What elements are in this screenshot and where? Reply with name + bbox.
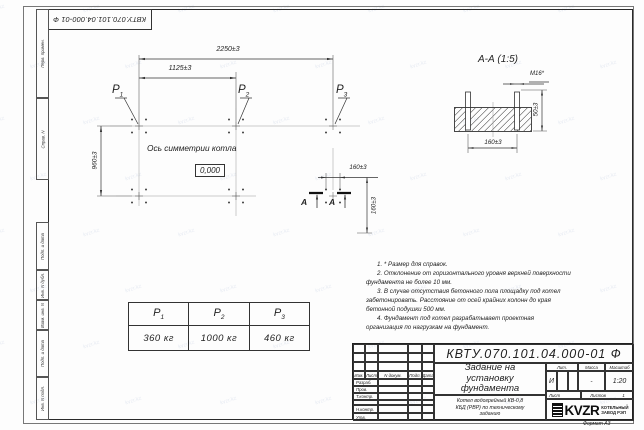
load-point-label-p1: P1	[112, 84, 123, 98]
title-block-cell-labeled: Пров.	[353, 386, 378, 393]
side-strip-label: Подп. и дата	[40, 340, 45, 367]
concrete-hatch	[455, 108, 531, 131]
title-block-cell	[408, 362, 422, 371]
title-block-cell	[422, 344, 434, 353]
loads-table-header-p3: P3	[249, 303, 309, 326]
title-block-cell-labeled: Разраб.	[353, 379, 378, 386]
sheets-value: 1	[622, 393, 624, 398]
dim-label-depth: 960±3	[92, 141, 99, 181]
format-label: Формат А3	[583, 421, 610, 427]
watermark-text: kvzr.kz	[0, 4, 5, 15]
title-block-cell	[408, 405, 422, 413]
title-block-product: Котел водогрейный КВ-0,8 КБД (РВР) по те…	[434, 395, 546, 421]
side-strip-label: Подп. и дата	[40, 233, 45, 260]
notes-block: 1. * Размер для справок. 2. Отклонение о…	[366, 261, 572, 333]
title-block-cell	[422, 386, 434, 393]
title-block-cell-labeled: Т.контр.	[353, 393, 378, 400]
title-block-cell-labeled: Подп.	[408, 371, 422, 379]
title-block-cell	[365, 344, 378, 353]
side-strip-label: Инв. N подл.	[40, 386, 45, 411]
title-block-cell-labeled: Изм.	[353, 371, 365, 379]
title-block-cell	[353, 353, 365, 362]
load-point-label-p2: P2	[238, 84, 249, 98]
bolt-size-label: М16*	[530, 71, 544, 77]
note-3: 3. В случае отсутствия бетонного пола пл…	[366, 288, 572, 315]
note-1: 1. * Размер для справок.	[366, 261, 572, 270]
document-number-stamp: КВТУ.070.101.04.000-01 Ф	[48, 9, 152, 30]
title-block-cell	[422, 379, 434, 386]
title-block-cell	[408, 344, 422, 353]
lit-cell-3	[568, 371, 578, 391]
title-block-cell	[408, 379, 422, 386]
side-strip-cell: Перв. примен.	[36, 9, 49, 98]
sheets-cell: Листов 1	[581, 391, 634, 399]
title-block-cell-labeled: Утв.	[353, 413, 378, 421]
dim-label-overall-width: 2250±3	[200, 46, 256, 53]
scale-header: Масштаб	[605, 363, 634, 371]
title-block-cell	[408, 386, 422, 393]
title-block-cell-labeled: Н.контр.	[353, 405, 378, 413]
side-strip-cell: Подп. и дата	[36, 222, 49, 270]
title-block-cell	[422, 362, 434, 371]
scale-value: 1:20	[605, 371, 634, 391]
watermark-text: kvzr.kz	[0, 228, 5, 239]
section-letter-left: А	[301, 197, 307, 207]
title-block-cell	[378, 353, 408, 362]
title-block-cell	[408, 413, 422, 421]
mass-header: Масса	[578, 363, 605, 371]
title-block-cell	[365, 362, 378, 371]
title-block-cell-labeled: Дата	[422, 371, 434, 379]
section-letter-right: А	[329, 197, 335, 207]
note-4: 4. Фундамент под котел разрабатывает про…	[366, 315, 572, 333]
dim-label-section-width: 160±3	[473, 139, 513, 146]
load-point-label-p3: P3	[336, 84, 347, 98]
dim-label-half-width: 1125±3	[152, 65, 208, 72]
title-block-cell	[378, 362, 408, 371]
lit-value: И	[546, 371, 557, 391]
sheet-label: Лист	[546, 391, 581, 399]
elevation-value: 0,000	[200, 166, 220, 175]
side-strip-cell: Инв. N подл.	[36, 377, 49, 420]
title-block-cell	[408, 353, 422, 362]
title-block-cell	[353, 344, 365, 353]
title-block-cell	[422, 393, 434, 400]
title-block-cell	[378, 344, 408, 353]
loads-table-value-p2: 1000 кг	[189, 326, 249, 351]
title-block-cell	[378, 379, 408, 386]
sheets-label: Листов	[590, 393, 606, 398]
side-strip-cell: Инв. N дубл.	[36, 270, 49, 300]
note-2: 2. Отклонение от горизонтального уровня …	[366, 270, 572, 288]
side-strip-label: Справ. N	[40, 130, 45, 148]
title-block-cell	[378, 413, 408, 421]
drawing-sheet: kvzr.kzkvzr.kzkvzr.kzkvzr.kzkvzr.kzkvzr.…	[0, 0, 644, 430]
logo-text: KVZR	[565, 403, 600, 418]
rep-emblem-icon	[552, 403, 563, 417]
watermark-text: kvzr.kz	[0, 340, 5, 351]
side-strip-cell: Подп. и дата	[36, 330, 49, 377]
side-strip-label: Перв. примен.	[40, 39, 45, 68]
title-block-cell	[422, 353, 434, 362]
title-block-cell-labeled: Лист	[365, 371, 378, 379]
title-block-designation: КВТУ.070.101.04.000-01 Ф	[434, 344, 634, 363]
title-block-cell	[422, 413, 434, 421]
symmetry-axis-label: Ось симметрии котла	[147, 143, 235, 153]
dim-label-section-height: 50±3	[533, 91, 540, 129]
loads-table-value-p1: 360 кг	[129, 326, 189, 351]
title-block: КВТУ.070.101.04.000-01 Ф Задание на уста…	[352, 343, 633, 420]
document-number-stamp-text: КВТУ.070.101.04.000-01 Ф	[53, 15, 146, 24]
title-block-cell	[408, 393, 422, 400]
title-block-cell	[353, 362, 365, 371]
side-strip-label: Инв. N дубл.	[40, 273, 45, 298]
section-title: А-А (1:5)	[466, 54, 530, 65]
company-logo: KVZR КОТЕЛЬНЫЙ ЗАВОД РЭП	[552, 403, 629, 418]
dim-label-bolt-spacing-v: 160±3	[371, 187, 378, 225]
side-strip-cell: Справ. N	[36, 98, 49, 180]
title-block-cell	[422, 405, 434, 413]
mass-value: -	[578, 371, 605, 391]
title-block-cell	[378, 405, 408, 413]
loads-table-header-p1: P1	[129, 303, 189, 326]
logo-cell: KVZR КОТЕЛЬНЫЙ ЗАВОД РЭП	[546, 399, 634, 421]
title-block-doc-title: Задание на установку фундамента	[434, 363, 546, 395]
elevation-mark: 0,000	[195, 164, 225, 177]
title-block-cell-labeled: N докум.	[378, 371, 408, 379]
loads-table-value-p3: 460 кг	[249, 326, 309, 351]
lit-cell-2	[557, 371, 568, 391]
watermark-text: kvzr.kz	[0, 116, 5, 127]
dim-label-bolt-spacing-h: 160±3	[339, 164, 377, 171]
loads-table-header-p2: P2	[189, 303, 249, 326]
loads-table: P1 P2 P3 360 кг 1000 кг 460 кг	[128, 302, 310, 351]
side-strip-cell: Взам. инв. N	[36, 300, 49, 330]
company-name: КОТЕЛЬНЫЙ ЗАВОД РЭП	[601, 405, 628, 416]
title-block-cell	[378, 386, 408, 393]
title-block-cell	[365, 353, 378, 362]
side-strip-label: Взам. инв. N	[40, 302, 45, 327]
title-block-cell	[378, 393, 408, 400]
lit-header: Лит.	[546, 363, 578, 371]
